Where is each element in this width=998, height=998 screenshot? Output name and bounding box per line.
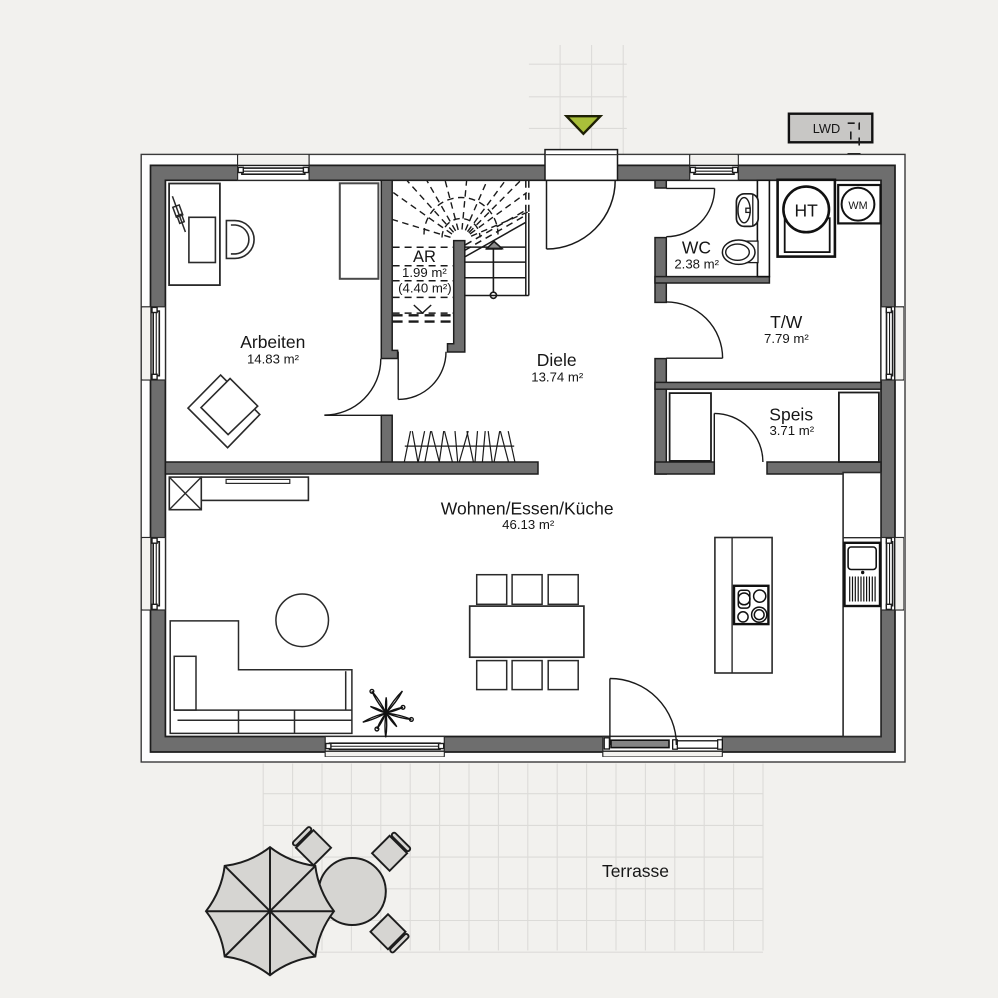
svg-text:7.79 m²: 7.79 m² xyxy=(764,331,809,346)
svg-text:Speis: Speis xyxy=(769,405,813,425)
svg-text:14.83 m²: 14.83 m² xyxy=(247,351,300,366)
svg-text:1.99 m²: 1.99 m² xyxy=(402,265,447,280)
svg-text:13.74 m²: 13.74 m² xyxy=(531,369,584,384)
svg-text:3.71 m²: 3.71 m² xyxy=(769,423,814,438)
svg-text:Diele: Diele xyxy=(537,350,577,370)
svg-text:WM: WM xyxy=(848,200,867,212)
svg-text:AR: AR xyxy=(413,248,436,266)
svg-text:46.13 m²: 46.13 m² xyxy=(502,517,555,532)
svg-text:WC: WC xyxy=(682,238,711,258)
svg-text:2.38 m²: 2.38 m² xyxy=(674,257,719,272)
svg-text:Terrasse: Terrasse xyxy=(602,861,669,881)
svg-text:LWD: LWD xyxy=(813,121,841,136)
svg-text:Arbeiten: Arbeiten xyxy=(240,332,305,352)
svg-text:HT: HT xyxy=(795,201,819,221)
svg-text:T/W: T/W xyxy=(770,312,803,332)
svg-text:(4.40 m²): (4.40 m²) xyxy=(398,281,452,296)
svg-text:Wohnen/Essen/Küche: Wohnen/Essen/Küche xyxy=(441,499,614,519)
